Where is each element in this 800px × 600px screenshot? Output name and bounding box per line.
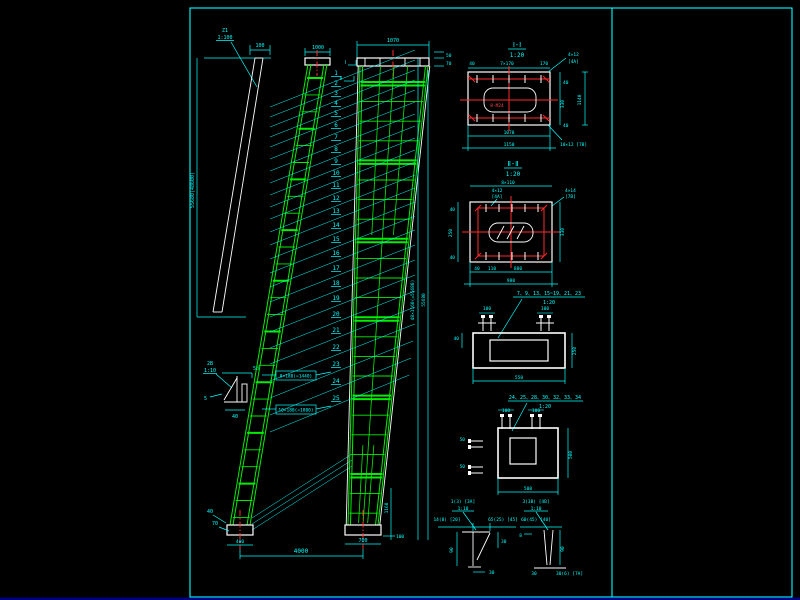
callout-label: 13 — [332, 208, 340, 215]
callout-label: 14 — [332, 222, 340, 229]
detail2-leader-r2: [7B] — [565, 194, 576, 200]
detail4-bolt-dim-r: 100 — [532, 408, 540, 414]
gusset-label: 2B — [207, 361, 213, 367]
span-dimension: 4000 — [240, 548, 363, 559]
tower1-base-note-b: 70 — [212, 521, 218, 527]
detail2-right-dim: 330 — [560, 228, 566, 236]
detail1-leader-br: 10×12 [7B] — [560, 142, 587, 148]
detail2-leader-l1: 4×12 — [492, 188, 503, 194]
detail4-bolt-dim-l: 100 — [502, 408, 510, 414]
callout-label: 20 — [332, 311, 340, 318]
section-detail-1: Ⅰ-Ⅰ 1:20 40 7×170 170 8-M24 40 330 40 11… — [460, 41, 588, 151]
callout-label: 24 — [332, 378, 340, 385]
detail4-bottom-dim: 500 — [524, 486, 532, 492]
callout-label: 5 — [334, 110, 338, 117]
detail4-title: 24、25、28、30、32、33、34 — [509, 395, 581, 401]
detail2-left-a: 40 — [450, 207, 456, 213]
wedge1-height-dim: 90 — [449, 547, 455, 553]
callout-label: 12 — [332, 195, 340, 202]
gusset-scale: 1:10 — [204, 368, 216, 374]
detail1-title: Ⅰ-Ⅰ — [513, 41, 521, 49]
callout-label: 16 — [332, 250, 340, 257]
left-elevation: Z1 1:100 100 55680(48600) — [190, 28, 271, 317]
wedge2-height-dim: 90 — [560, 546, 566, 552]
callout-label: 8 — [334, 146, 338, 153]
wedge1-bottom-dim: 30 — [489, 570, 495, 576]
tower1-base-note-a: 40 — [207, 509, 213, 515]
detail2-bottom-c: 880 — [514, 266, 522, 272]
detail3-bolt-dim-r: 100 — [541, 306, 549, 312]
wedge2-bottom-r-dim: 30(6) [7A] — [556, 571, 583, 577]
wedge2-title: 3(3B) [4B] — [522, 499, 549, 505]
detail1-right-total: 1140 — [577, 94, 583, 105]
tower2-lattice — [346, 66, 430, 525]
section-detail-4: 24、25、28、30、32、33、34 1:20 100 100 50 50 … — [460, 395, 583, 495]
cad-drawing-canvas: Z1 1:100 100 55680(48600) 2B 1:10 50 40 … — [0, 0, 800, 600]
callout-label: 4 — [334, 100, 338, 107]
callout-label: 1 — [334, 70, 338, 77]
detail1-right-c: 40 — [563, 123, 569, 129]
tower2-height-dim: 48×1160(=55680) — [410, 280, 416, 321]
detail4-left-dim-a: 50 — [460, 437, 466, 443]
tower1-note-b: 10×180(=1800) — [278, 408, 313, 414]
tower-elevation-1: 1000 400 40 70 8×180(=1440) 10×180(=1800… — [207, 45, 352, 549]
left-view-top-dim: 100 — [255, 43, 264, 49]
tower2-base-dim-b: 100 — [396, 534, 404, 540]
callout-label: 10 — [332, 170, 340, 177]
callout-label: 2 — [334, 80, 338, 87]
tower2-height-total: 55680 — [421, 293, 427, 307]
callout-label: 3 — [334, 90, 338, 97]
callout-label: 18 — [332, 280, 340, 287]
wedge1-title: 1(3) [3A] — [451, 499, 475, 505]
wedge-detail-2: 3(3B) [4B] 1:10 60(45) [40] 8 90 30 30(6… — [519, 499, 583, 577]
callout-label: 23 — [332, 361, 340, 368]
callout-label: 11 — [332, 182, 340, 189]
detail1-scale: 1:20 — [510, 52, 525, 59]
gusset-detail: 2B 1:10 50 40 5 — [203, 361, 259, 420]
wedge1-dim-r: 65(25) [45] — [488, 517, 518, 523]
callout-label: 21 — [332, 327, 340, 334]
callout-label: 17 — [332, 265, 340, 272]
detail3-right-dim: 250 — [572, 347, 578, 355]
detail4-left-dim-b: 50 — [460, 464, 466, 470]
detail2-left-b: 250 — [448, 229, 454, 237]
detail3-bottom-dim: 550 — [515, 375, 523, 381]
detail3-title: 7、9、13、15~19、21、23 — [517, 291, 581, 297]
detail3-bolt-dim-l: 100 — [483, 306, 491, 312]
detail4-scale: 1:20 — [539, 404, 551, 410]
detail2-bottom-b: 110 — [488, 266, 496, 272]
detail1-top-mid-dim: 7×170 — [500, 61, 514, 67]
tower-elevation-2: 1070 50 70 Ⅰ Ⅱ 48×1160(=55680) 55680 700… — [340, 38, 452, 549]
detail1-leader-tr2: [4A] — [568, 59, 579, 65]
left-view-height-dim: 55680(48600) — [190, 172, 196, 208]
detail1-right-b: 330 — [560, 100, 566, 108]
detail2-leader-r1: 4×14 — [565, 188, 576, 194]
section-detail-3: 7、9、13、15~19、21、23 1:20 100 100 40 250 5… — [454, 291, 585, 384]
detail1-top-left-dim: 40 — [469, 61, 475, 67]
callout-label: 7 — [334, 134, 338, 141]
callout-label: 19 — [332, 295, 340, 302]
detail1-bottom-b: 1150 — [504, 142, 515, 148]
detail3-bolt-marks — [478, 313, 554, 331]
gusset-dim-b: 40 — [232, 414, 238, 420]
wedge2-left-dim: 8 — [519, 533, 522, 539]
tower2-top-dim: 1070 — [387, 38, 399, 44]
wedge1-right-dim: 30 — [501, 539, 507, 545]
detail3-scale: 1:20 — [543, 300, 555, 306]
detail2-top-dim: 8×110 — [501, 180, 515, 186]
span-dim-text: 4000 — [294, 548, 309, 555]
tower1-base-dim: 400 — [236, 539, 244, 545]
left-view-label: Z1 — [222, 28, 228, 34]
callout-label: 22 — [332, 344, 340, 351]
section-detail-2: Ⅱ-Ⅱ 1:20 8×110 4×12 [4A] 4×14 [7B] 40 25… — [448, 160, 576, 287]
tower1-note-a: 8×180(=1440) — [280, 374, 313, 380]
detail2-title: Ⅱ-Ⅱ — [507, 160, 518, 168]
left-view-scale: 1:100 — [217, 35, 232, 41]
tower2-dim-50: 50 — [446, 53, 452, 59]
detail3-left-dim: 40 — [454, 336, 460, 342]
detail2-bottom-a: 40 — [474, 266, 480, 272]
callout-label: 15 — [332, 236, 340, 243]
callout-label: 25 — [332, 395, 340, 402]
detail1-top-right-dim: 170 — [540, 61, 548, 67]
detail2-bottom-total: 980 — [507, 278, 515, 284]
detail4-right-dim: 500 — [568, 451, 574, 459]
detail1-bottom-a: 1070 — [504, 130, 515, 136]
tower2-base-dim: 700 — [358, 538, 367, 544]
detail4-bolt-marks — [468, 410, 544, 475]
tower2-marker-a: Ⅰ — [345, 60, 346, 66]
wedge-detail-1: 1(3) [3A] 1:10 14(8) [20] 65(25) [45] 90… — [433, 499, 517, 576]
callout-label: 6 — [334, 122, 338, 129]
detail1-right-a: 40 — [563, 80, 569, 86]
callout-label: 9 — [334, 158, 338, 165]
detail2-scale: 1:20 — [506, 171, 521, 178]
wedge2-dim-top: 60(45) [40] — [521, 517, 551, 523]
detail2-left-c: 40 — [450, 255, 456, 261]
gusset-dim-c: 5 — [204, 396, 207, 402]
detail1-leader-tr1: 4×12 — [568, 52, 579, 58]
wedge1-dim-l: 14(8) [20] — [433, 517, 460, 523]
tower2-dim-70: 70 — [446, 61, 452, 67]
wedge2-bottom-l-dim: 30 — [531, 571, 537, 577]
tower2-side-dim: 1160 — [384, 502, 390, 513]
detail1-bolt-note: 8-M24 — [490, 103, 504, 109]
tower1-top-dim: 1000 — [312, 45, 324, 51]
